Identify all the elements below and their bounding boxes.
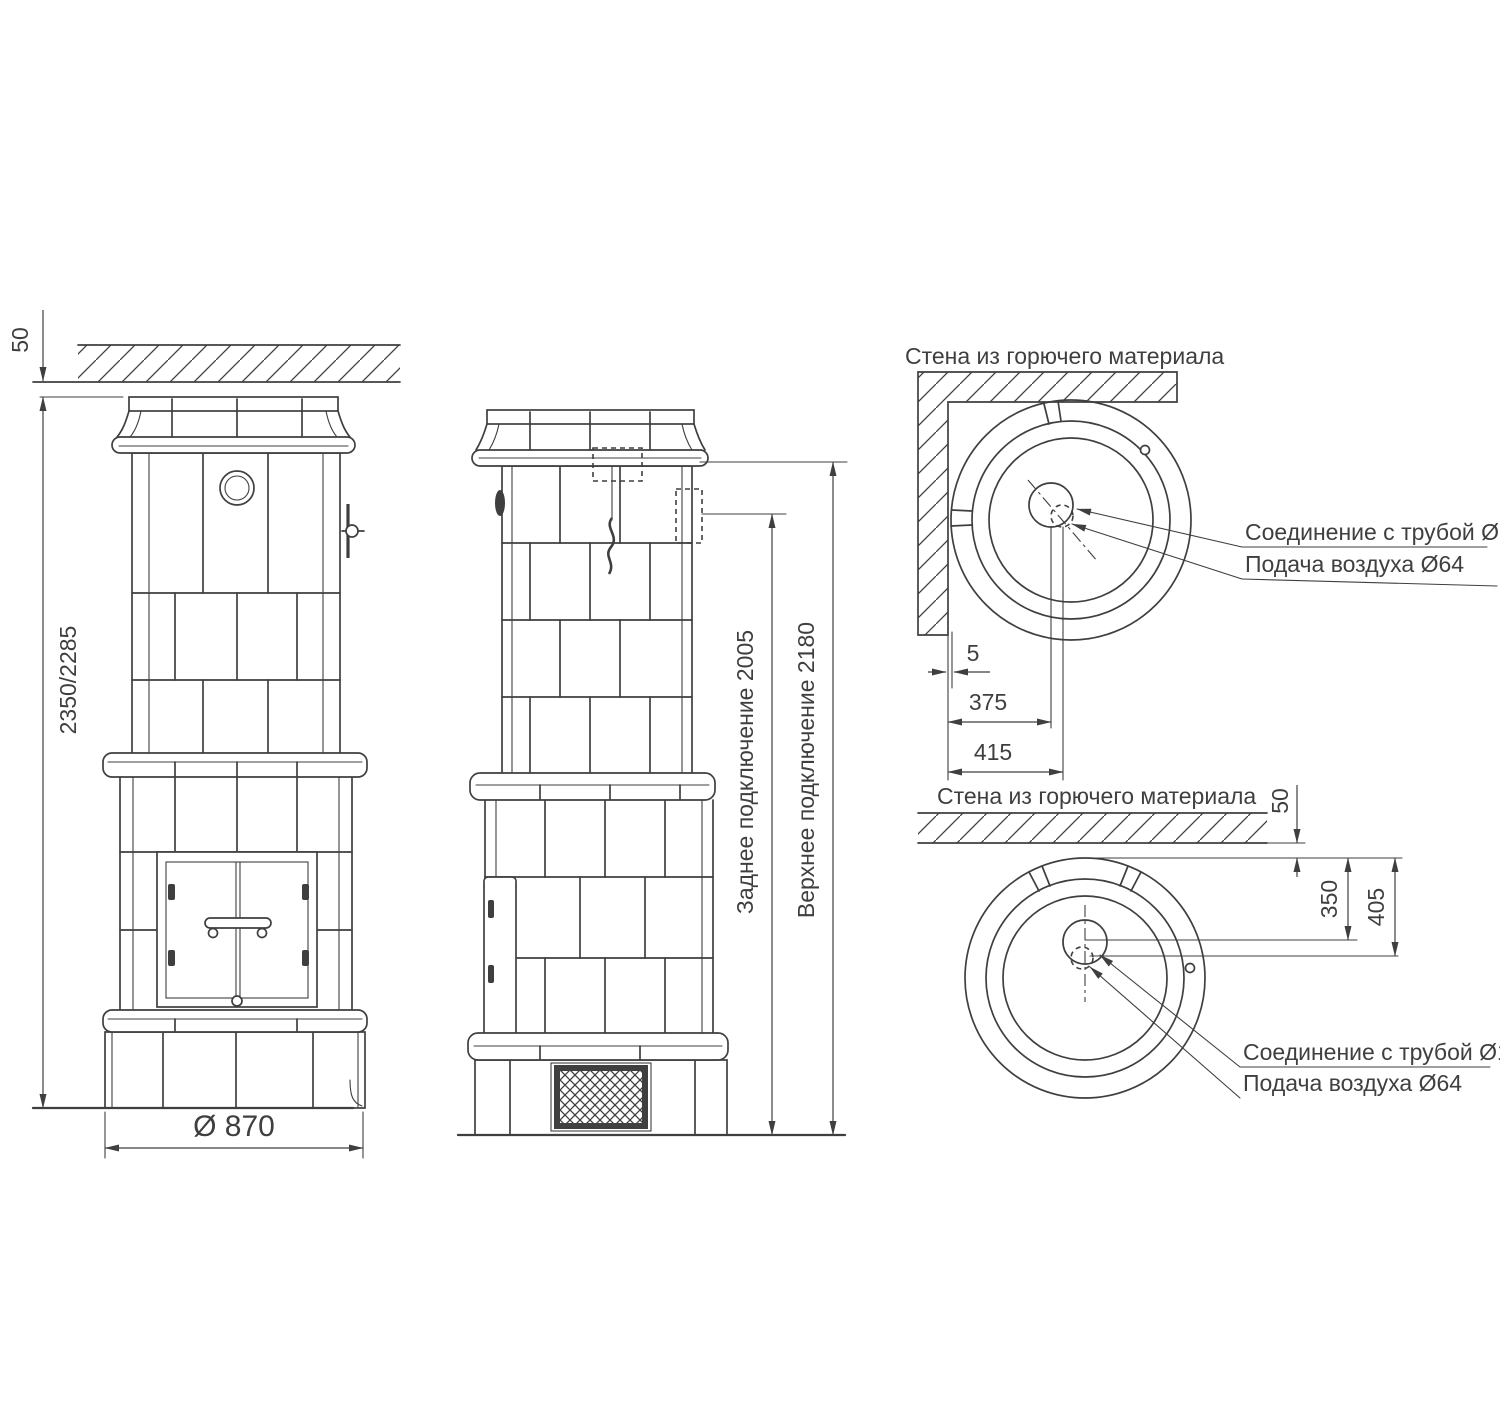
front-plinth [105, 1032, 365, 1108]
door-hinge-icon [488, 900, 494, 918]
front-crown [112, 397, 355, 453]
side-view: Заднее подключение 2005 Верхнее подключе… [458, 410, 847, 1135]
fire-door [157, 852, 317, 1007]
door-hinge-icon [488, 965, 494, 983]
stove-technical-drawing: 50 2350/2285 Ø 870 [0, 0, 1500, 1427]
gap-dim-label: 50 [1267, 788, 1293, 814]
dim-top-connection-label: Верхнее подключение 2180 [793, 622, 819, 918]
wall-plan-dimensions: 50 350 405 [1085, 785, 1398, 956]
wall-material-label: Стена из горючего материала [937, 783, 1256, 809]
door-hinge-icon [302, 950, 309, 966]
door-hinge-icon [302, 884, 309, 900]
dim-height-label: 2350/2285 [55, 626, 81, 735]
corner-plan-view: Стена из горючего материала 5 375 [905, 343, 1500, 780]
plan-knob-icon [1186, 964, 1195, 973]
flue-outlet-icon [1029, 483, 1073, 527]
ceiling-section [33, 345, 400, 382]
air-supply-label: Подача воздуха Ø64 [1245, 551, 1464, 577]
gap-dim-label: 5 [967, 640, 980, 666]
corner-plan-callouts: Соединение с трубой Ø154 Подача воздуха … [1072, 509, 1500, 586]
side-dimensions: Заднее подключение 2005 Верхнее подключе… [732, 462, 833, 1135]
flue-connection-label: Соединение с трубой Ø154 [1243, 1039, 1500, 1065]
wall-section [918, 813, 1305, 843]
plan-knob-icon [1141, 446, 1150, 455]
dim-ceiling-gap-label: 50 [7, 327, 33, 353]
wall-plan-view: Стена из горючего материала 5 [918, 783, 1500, 1098]
front-mid-cornice [103, 753, 367, 777]
side-plinth [475, 1060, 727, 1135]
side-knob-icon [495, 490, 505, 516]
side-mid-cornice [470, 773, 715, 800]
front-lower-body [120, 777, 352, 1010]
side-upper-body [495, 466, 692, 773]
air-offset-dim-label: 405 [1363, 888, 1389, 926]
front-base-cornice [103, 1010, 367, 1032]
stove-plan-circles [951, 400, 1191, 640]
front-view: 50 2350/2285 Ø 870 [7, 310, 400, 1158]
flue-offset-dim-label: 375 [969, 689, 1007, 715]
rear-connection-outline [676, 489, 702, 543]
air-supply-label: Подача воздуха Ø64 [1243, 1070, 1462, 1096]
door-knob-icon [232, 996, 242, 1006]
side-crown [472, 410, 708, 466]
side-base-cornice [468, 1033, 728, 1060]
side-door-edge [483, 877, 516, 1052]
front-upper-body [132, 453, 340, 753]
dim-rear-connection-label: Заднее подключение 2005 [732, 630, 758, 914]
technical-drawing-canvas: 50 2350/2285 Ø 870 [0, 0, 1500, 1427]
flue-connection-label: Соединение с трубой Ø154 [1245, 519, 1500, 545]
damper-handle-icon [342, 504, 364, 558]
wall-material-label: Стена из горючего материала [905, 343, 1224, 369]
air-grille-icon [557, 1068, 645, 1126]
flue-offset-dim-label: 350 [1316, 880, 1342, 918]
door-hinge-icon [168, 950, 175, 966]
stove-plan-circles [965, 858, 1205, 1098]
air-offset-dim-label: 415 [974, 739, 1012, 765]
damper-pendant-icon [608, 518, 614, 574]
side-lower-body [483, 800, 713, 1052]
door-hinge-icon [168, 884, 175, 900]
dim-diameter-label: Ø 870 [193, 1110, 275, 1143]
door-handle-icon [205, 918, 271, 928]
